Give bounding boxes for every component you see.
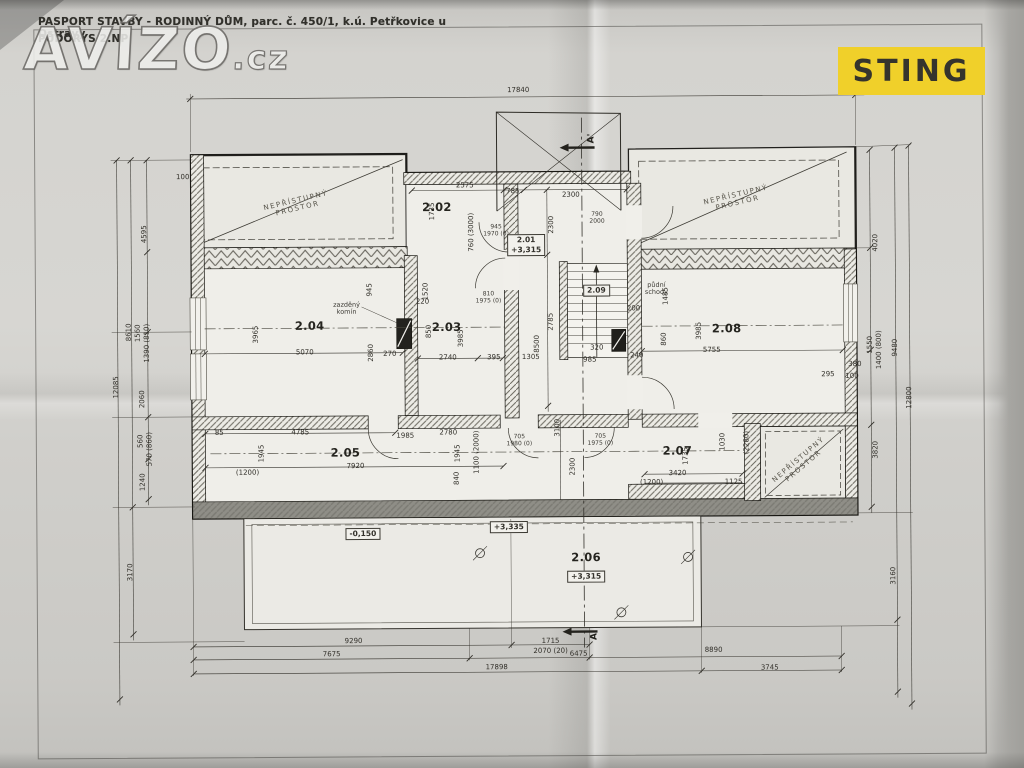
level-annotation: -0,150 xyxy=(345,528,380,540)
dimension-label: 2785 xyxy=(548,313,556,331)
room-number: 2.05 xyxy=(331,446,361,459)
dimension-label: 1945 xyxy=(258,445,266,463)
dimension-label: (1200) xyxy=(640,479,663,487)
watermark-suffix-text: .cz xyxy=(231,38,290,77)
dimension-label: 240 xyxy=(630,352,643,360)
dimension-label: 1305 xyxy=(522,354,540,362)
dimension-label: 3160 xyxy=(890,567,898,585)
door-spec-label: 945 1970 (0) xyxy=(483,224,509,238)
dimension-label: 9480 xyxy=(892,339,900,357)
dimension-label: 1735 xyxy=(429,203,437,221)
dimension-label: 4020 xyxy=(872,234,880,252)
text-annotation: zazděný komín xyxy=(333,302,360,317)
dimension-label: 785 xyxy=(506,188,519,196)
dimension-label: 1550 xyxy=(867,336,875,354)
floor-plan-drawing xyxy=(0,0,1024,768)
dimension-label: 1400 (800) xyxy=(876,330,884,369)
dimension-label: 3965 xyxy=(253,326,261,344)
dimension-label: 8500 xyxy=(534,335,542,353)
dimension-label: 85 xyxy=(215,430,224,438)
sting-logo: STING xyxy=(838,47,985,95)
dimension-label: 570 (860) xyxy=(146,432,154,466)
dimension-label: 2575 xyxy=(456,182,474,190)
dimension-label: 9290 xyxy=(345,638,363,646)
dimension-label: 1985 xyxy=(396,433,414,441)
room-number: 2.06 xyxy=(571,551,601,564)
dimension-label: 2300 xyxy=(548,216,556,234)
dimension-label: 6475 xyxy=(570,651,588,659)
watermark-main-text: AVÍZO xyxy=(22,15,234,83)
dimension-label: 5070 xyxy=(296,349,314,357)
dimension-label: 12800 xyxy=(906,386,914,408)
door-spec-label: 705 1980 (0) xyxy=(506,434,532,448)
dimension-label: 3420 xyxy=(669,470,687,478)
dimension-label: 3100 xyxy=(554,419,562,437)
dimension-label: 100 xyxy=(176,174,189,182)
dimension-label: 200 xyxy=(627,305,640,313)
dimension-label: (2280) xyxy=(743,431,751,454)
dimension-label: 1390 (810) xyxy=(144,324,152,363)
dimension-label: 8890 xyxy=(705,647,723,655)
room-number: 2.02 xyxy=(422,201,452,214)
room-number: 2.04 xyxy=(295,320,325,333)
dimension-label: 2300 xyxy=(570,458,578,476)
dimension-label: 2070 (20) xyxy=(533,648,567,656)
dimension-label: 1715 xyxy=(542,638,560,646)
dimension-label: 2780 xyxy=(439,429,457,437)
dimension-label: 3820 xyxy=(872,441,880,459)
dimension-label: 1100 (2000) xyxy=(473,431,481,474)
dimension-label: 1520 xyxy=(422,283,430,301)
sting-logo-text: STING xyxy=(853,54,971,89)
dimension-label: 7675 xyxy=(323,651,341,659)
avizo-watermark: AVÍZO.cz xyxy=(22,20,291,78)
dimension-label: 4595 xyxy=(141,225,149,243)
photographed-floor-plan: PASPORT STAVBY - RODINNÝ DŮM, parc. č. 4… xyxy=(0,0,1024,768)
dimension-label: 12085 xyxy=(113,376,121,398)
dimension-label: (1200) xyxy=(236,470,259,478)
dimension-label: 320 xyxy=(590,345,603,353)
level-annotation: 2.09 xyxy=(583,285,610,297)
level-annotation: 2.01 +3,315 xyxy=(507,234,545,256)
section-marker-label: A' xyxy=(586,134,596,144)
dimension-label: 860 xyxy=(661,332,669,345)
dimension-label: 1735 xyxy=(682,447,690,465)
section-marker-label: A xyxy=(589,633,599,640)
dimension-label: 1945 xyxy=(454,444,462,462)
dimension-label: 2740 xyxy=(439,354,457,362)
dimension-label: 760 (3000) xyxy=(468,213,476,252)
dimension-label: 2860 xyxy=(368,344,376,362)
dimension-label: 7920 xyxy=(347,463,365,471)
dimension-label: 1125 xyxy=(725,479,743,487)
dimension-label: 2060 xyxy=(139,390,147,408)
dimension-label: 3745 xyxy=(761,664,779,672)
level-annotation: +3,335 xyxy=(490,521,528,533)
dimension-label: 270 xyxy=(383,351,396,359)
dimension-label: 3170 xyxy=(127,563,135,581)
dimension-label: 985 xyxy=(583,357,596,365)
door-spec-label: 705 1975 (0) xyxy=(587,434,613,448)
dimension-label: 3985 xyxy=(458,329,466,347)
dimension-label: 100 xyxy=(845,373,858,381)
dimension-label: 17898 xyxy=(486,664,508,672)
dimension-label: 380 xyxy=(848,361,861,369)
dimension-label: 5755 xyxy=(703,347,721,355)
dimension-label: 1240 xyxy=(140,473,148,491)
dimension-label: 840 xyxy=(454,472,462,485)
dimension-label: 2300 xyxy=(562,192,580,200)
dimension-label: 8610 xyxy=(126,323,134,341)
dimension-label: 395 xyxy=(487,354,500,362)
door-spec-label: 790 2000 xyxy=(589,212,604,226)
dimension-label: 1485 xyxy=(662,287,670,305)
terrace-outline xyxy=(244,516,702,630)
floor-plan: 2.022.042.032.082.052.072.062.01 +3,3152… xyxy=(0,0,1024,768)
dimension-label: 3985 xyxy=(696,322,704,340)
dimension-label: 4785 xyxy=(291,429,309,437)
door-spec-label: 810 1975 (0) xyxy=(476,291,502,305)
room-number: 2.08 xyxy=(712,322,742,335)
dimension-label: 945 xyxy=(366,283,374,296)
level-annotation: +3,315 xyxy=(567,571,605,583)
dimension-label: 850 xyxy=(426,325,434,338)
dimension-label: 17840 xyxy=(507,87,529,95)
dimension-label: 1030 xyxy=(719,433,727,451)
dimension-label: 295 xyxy=(821,371,834,379)
dimension-label: 1560 xyxy=(135,324,143,342)
dimension-label: 560 xyxy=(137,435,145,448)
